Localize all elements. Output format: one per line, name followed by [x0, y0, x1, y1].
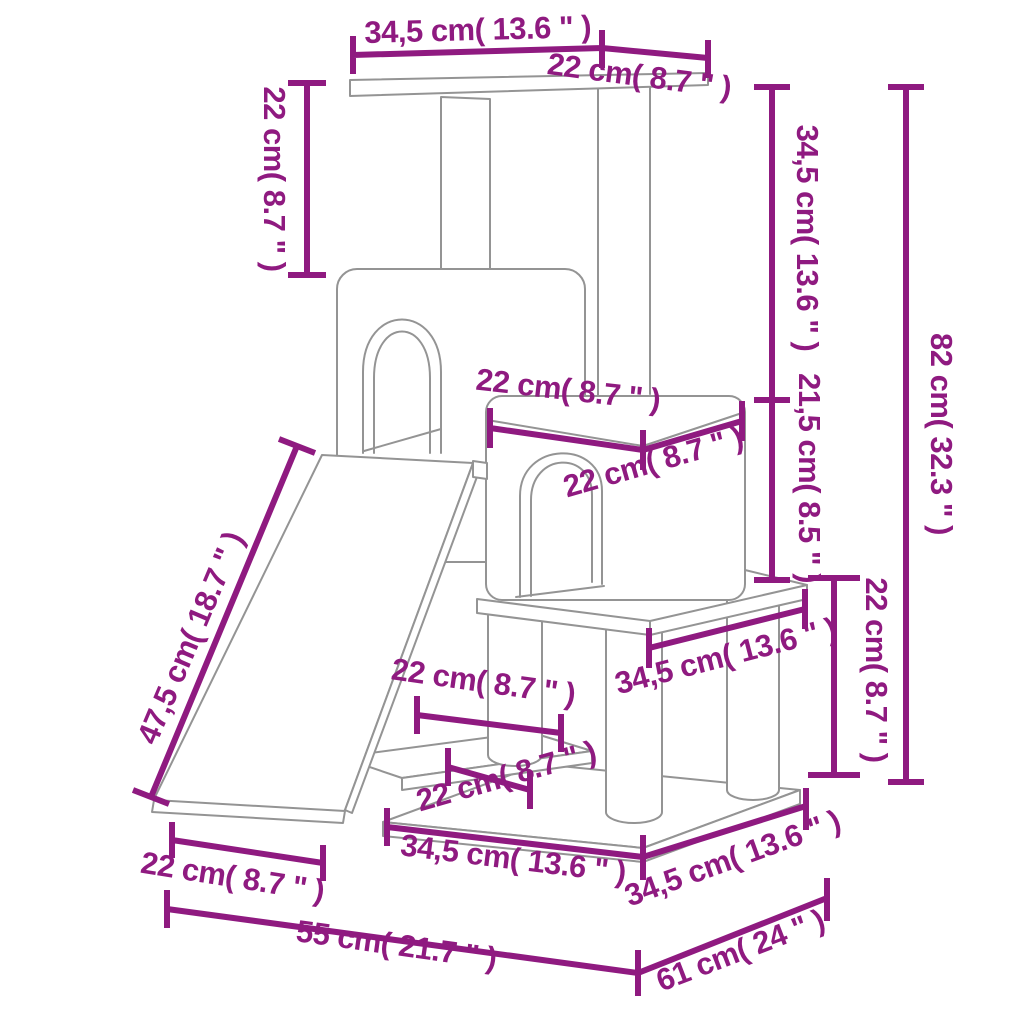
label-condo-height: 21,5 cm( 8.5 " ) [792, 373, 827, 583]
label-lower-section-height: 22 cm( 8.7 " ) [859, 577, 894, 762]
dim-condo-height-line [754, 400, 790, 580]
label-overall-depth: 61 cm( 24 " ) [651, 902, 829, 998]
ramp-hinge [473, 461, 487, 479]
label-total-height: 82 cm( 32.3 " ) [924, 333, 959, 535]
dim-lower-section-height-line [808, 578, 860, 775]
diagram-canvas: 34,5 cm( 13.6 " ) 22 cm( 8.7 " ) 22 cm( … [0, 0, 1024, 1024]
cat-tree-dimension-diagram: 34,5 cm( 13.6 " ) 22 cm( 8.7 " ) 22 cm( … [0, 0, 1024, 1024]
label-upper-section-height: 34,5 cm( 13.6 " ) [790, 125, 825, 352]
cat-tree-line-art [152, 73, 807, 862]
dim-front-post-height-line [288, 83, 326, 275]
back-post [598, 83, 650, 396]
label-top-platform-width: 34,5 cm( 13.6 " ) [364, 9, 592, 50]
front-post [441, 97, 490, 271]
label-front-post-height: 22 cm( 8.7 " ) [257, 86, 292, 271]
label-overall-width: 55 cm( 21.7 " ) [294, 913, 499, 976]
dim-upper-section-height-line [754, 87, 790, 400]
